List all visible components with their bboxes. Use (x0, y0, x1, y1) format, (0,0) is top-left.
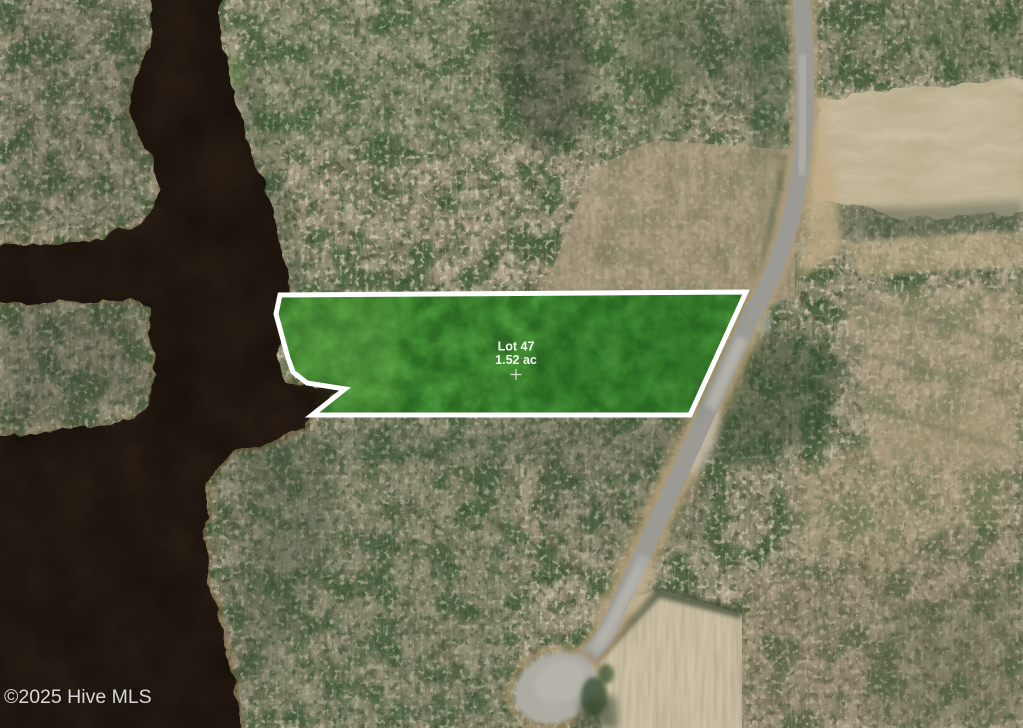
svg-text:Lot 47: Lot 47 (498, 340, 535, 354)
svg-text:©2025 Hive MLS: ©2025 Hive MLS (4, 686, 152, 708)
svg-text:1.52 ac: 1.52 ac (495, 353, 537, 367)
